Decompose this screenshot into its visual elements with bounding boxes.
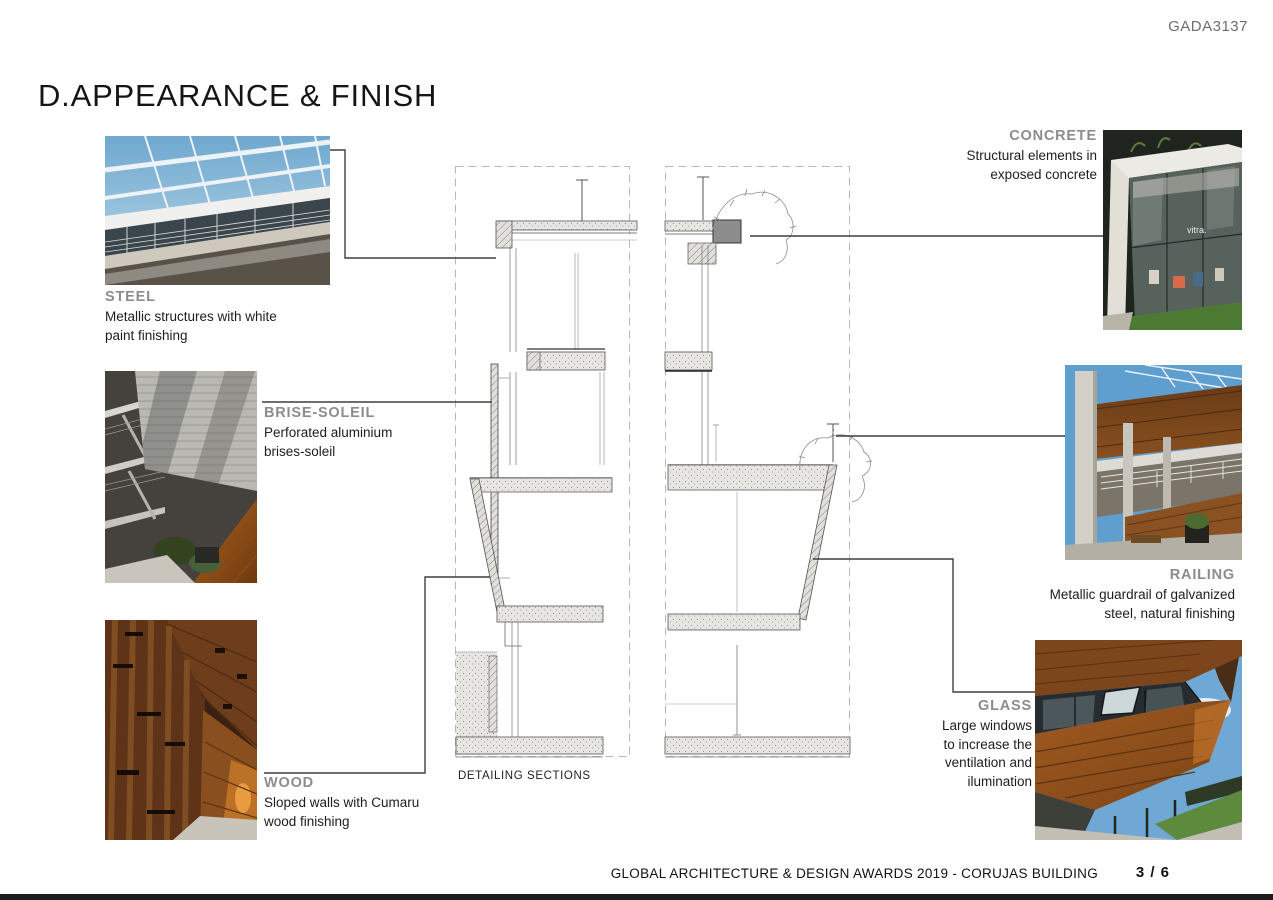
planter-element (713, 220, 741, 243)
glass-callout-line (813, 559, 1036, 692)
concrete-label-block: CONCRETE Structural elements in exposed … (937, 128, 1097, 184)
glass-name: GLASS (927, 698, 1032, 714)
brise-soleil-photo (105, 371, 257, 583)
drawing-caption: DETAILING SECTIONS (458, 770, 591, 782)
steel-photo (105, 136, 330, 285)
section-drawing-right (665, 167, 872, 758)
concrete-name: CONCRETE (937, 128, 1097, 144)
page-number: 3 / 6 (1136, 864, 1170, 881)
brise-soleil-description: Perforated aluminium brises-soleil (264, 424, 414, 461)
railing-label-block: RAILING Metallic guardrail of galvanized… (1020, 567, 1235, 623)
glass-label-block: GLASS Large windows to increase the vent… (927, 698, 1032, 792)
brise-soleil-label-block: BRISE-SOLEIL Perforated aluminium brises… (264, 405, 414, 461)
railing-description: Metallic guardrail of galvanized steel, … (1020, 586, 1235, 623)
wood-name: WOOD (264, 775, 439, 791)
brise-soleil-name: BRISE-SOLEIL (264, 405, 414, 421)
steel-description: Metallic structures with white paint fin… (105, 308, 305, 345)
section-drawing-left (456, 167, 638, 758)
footer-text: GLOBAL ARCHITECTURE & DESIGN AWARDS 2019… (611, 866, 1098, 881)
open-awning-window (1101, 687, 1140, 715)
steel-label-block: STEEL Metallic structures with white pai… (105, 289, 305, 345)
railing-photo (1065, 365, 1242, 560)
sloped-wall-element (470, 479, 505, 612)
glass-photo (1035, 640, 1242, 840)
wood-description: Sloped walls with Cumaru wood finishing (264, 794, 439, 831)
steel-name: STEEL (105, 289, 305, 305)
wood-photo (105, 620, 257, 840)
wood-label-block: WOOD Sloped walls with Cumaru wood finis… (264, 775, 439, 831)
concrete-photo: vitra. (1103, 130, 1242, 330)
concrete-description: Structural elements in exposed concrete (937, 147, 1097, 184)
railing-name: RAILING (1020, 567, 1235, 583)
presentation-page: GADA3137 D.APPEARANCE & FINISH (0, 0, 1273, 900)
vitra-logo-text: vitra. (1187, 225, 1207, 235)
bottom-edge-bar (0, 894, 1273, 900)
glass-description: Large windows to increase the ventilatio… (927, 717, 1032, 792)
